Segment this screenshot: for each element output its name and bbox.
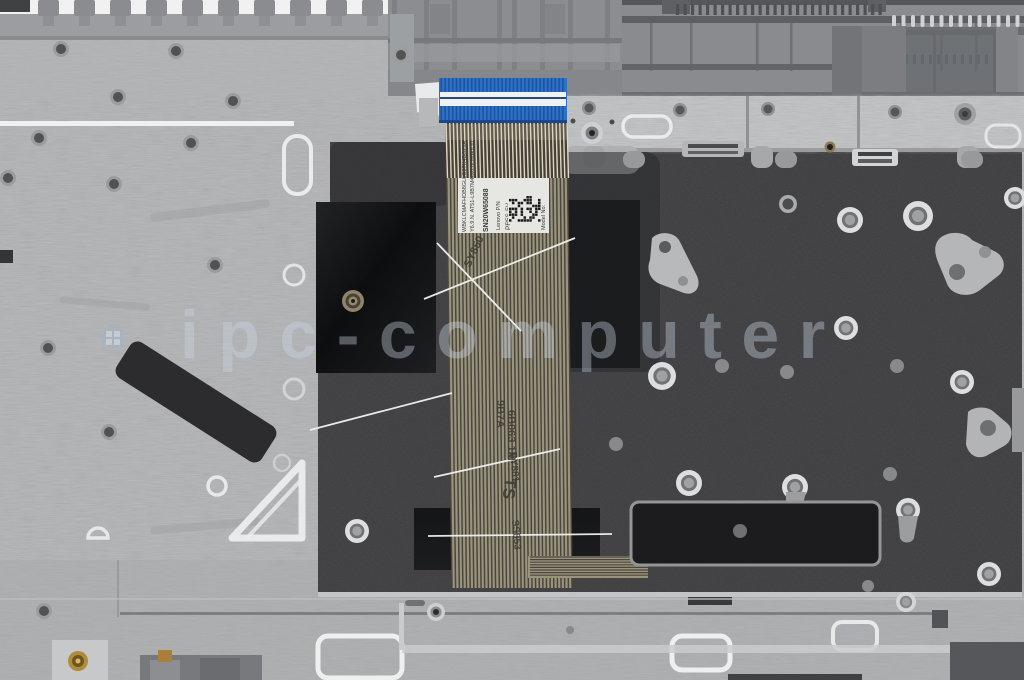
svg-text:9B7A: 9B7A <box>494 400 506 428</box>
svg-text:ipc-computer: ipc-computer <box>180 297 845 373</box>
svg-text:TS: TS <box>499 477 520 501</box>
svg-text:Model No:: Model No: <box>541 204 547 230</box>
svg-text:WBKLCMAFHDB8GLLG07K4BO29A: WBKLCMAFHDB8GLLG07K4BO29A <box>462 141 468 232</box>
svg-text:Lenovo P/N: Lenovo P/N <box>496 201 502 230</box>
svg-text:SN20W65088: SN20W65088 <box>483 188 490 232</box>
svg-text:Y6.9.N. AT51-L9B7M4O2L6UMA0O0: Y6.9.N. AT51-L9B7M4O2L6UMA0O0 <box>470 141 476 232</box>
